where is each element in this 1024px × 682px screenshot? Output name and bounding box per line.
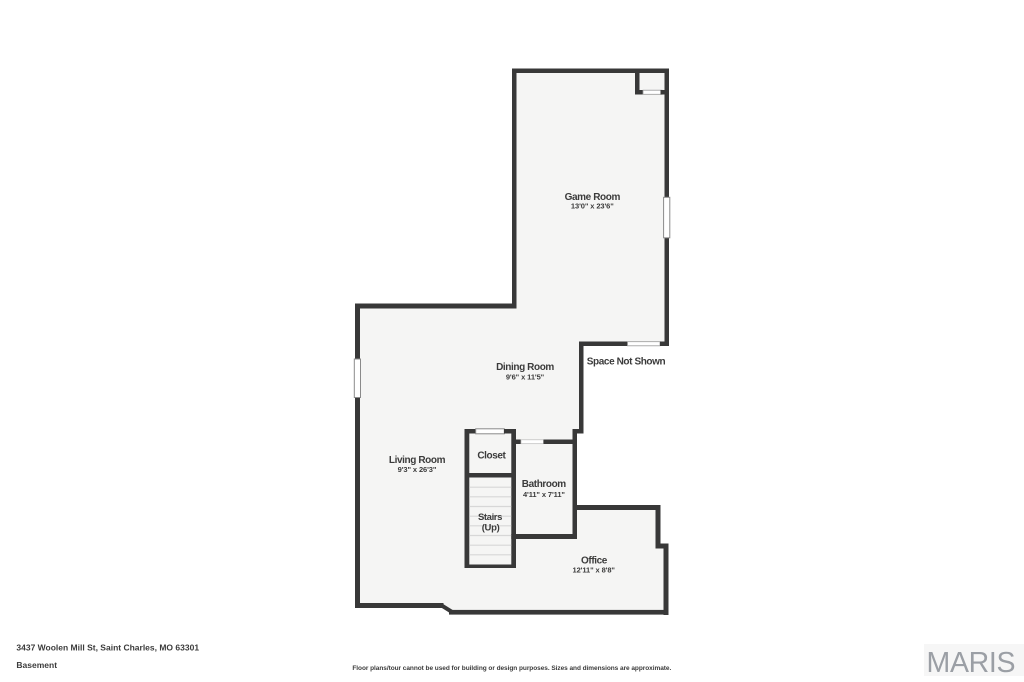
svg-text:9'6" x 11'5": 9'6" x 11'5" — [506, 373, 545, 382]
svg-text:4'11" x 7'11": 4'11" x 7'11" — [523, 490, 565, 499]
svg-text:12'11" x 8'8": 12'11" x 8'8" — [573, 566, 616, 575]
svg-text:Bathroom: Bathroom — [522, 479, 567, 490]
svg-text:Floor plans/tour cannot be use: Floor plans/tour cannot be used for buil… — [352, 665, 671, 672]
svg-text:Stairs: Stairs — [478, 512, 502, 523]
svg-text:Basement: Basement — [16, 660, 57, 670]
svg-text:13'0" x 23'6": 13'0" x 23'6" — [571, 202, 614, 211]
svg-text:(Up): (Up) — [482, 523, 500, 534]
svg-text:Dining Room: Dining Room — [496, 362, 554, 373]
svg-text:9'3" x 26'3": 9'3" x 26'3" — [398, 465, 437, 474]
svg-text:Space Not Shown: Space Not Shown — [587, 356, 666, 367]
svg-text:MARIS: MARIS — [927, 647, 1016, 679]
svg-text:3437 Woolen Mill St, Saint Cha: 3437 Woolen Mill St, Saint Charles, MO 6… — [16, 643, 199, 653]
svg-text:Closet: Closet — [477, 451, 506, 462]
